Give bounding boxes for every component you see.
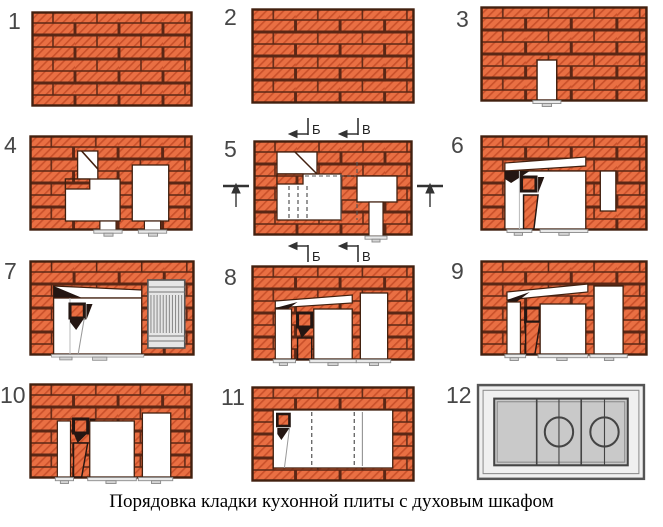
course-number: 9 <box>451 260 464 283</box>
door-hardware <box>52 355 144 361</box>
course-10-drawing <box>29 383 193 489</box>
door-hardware <box>273 360 390 366</box>
firebox-opening <box>540 304 586 354</box>
section-label-b: Б <box>312 249 321 264</box>
door-hardware <box>507 230 588 236</box>
door-hardware <box>365 236 387 242</box>
frame-section-square <box>298 313 312 327</box>
brick-wall <box>33 13 192 106</box>
firebox-opening <box>90 421 135 477</box>
top-notch-cavity <box>277 152 317 174</box>
firebox-cavity <box>505 171 586 229</box>
course-number: 3 <box>456 8 469 31</box>
door-slot <box>144 221 160 230</box>
oven-opening <box>142 413 170 477</box>
firebox-cavity <box>54 298 142 354</box>
oven-opening <box>360 293 387 359</box>
section-label-v: В <box>362 122 371 137</box>
course-8-drawing <box>251 265 415 371</box>
course-2-drawing <box>251 8 415 114</box>
masonry-course-sheet: 1 2 3 4 5 6 7 8 9 10 11 12 <box>0 0 663 527</box>
course-7-drawing <box>29 260 195 366</box>
course-4-drawing <box>29 135 193 241</box>
flue-channel <box>600 171 616 211</box>
interior-cavity <box>273 410 392 468</box>
door-slot <box>369 202 383 236</box>
ashpit-opening <box>537 60 557 100</box>
section-marker-v-top: В <box>339 118 371 138</box>
frame-section-square <box>277 414 289 426</box>
course-number: 2 <box>224 6 237 29</box>
section-arrow-right <box>417 184 443 207</box>
course-number: 6 <box>451 134 464 157</box>
frame-section-square <box>74 419 88 433</box>
left-channel <box>57 421 70 477</box>
door-slot <box>100 221 116 230</box>
course-number: 10 <box>0 384 26 407</box>
figure-caption: Порядовка кладки кухонной плиты с духовы… <box>0 491 663 513</box>
door-hardware <box>505 355 627 361</box>
section-marker-v-bottom: В <box>339 243 371 265</box>
section-marker-b-bottom: Б <box>289 243 321 265</box>
course-6-drawing <box>480 135 648 241</box>
course-number: 7 <box>4 260 17 283</box>
course-9-drawing <box>480 260 648 366</box>
left-channel <box>507 302 520 354</box>
brick-ledge <box>277 174 303 184</box>
door-hardware <box>94 230 167 236</box>
course-number: 12 <box>446 384 472 407</box>
frame-section-square <box>521 177 536 191</box>
brick-pier <box>298 338 312 359</box>
course-11-drawing <box>251 386 415 492</box>
brick-wall <box>253 10 414 103</box>
course-number: 8 <box>224 266 237 289</box>
section-marker-b-top: Б <box>289 118 321 138</box>
frame-section-square <box>70 304 84 318</box>
frame-section-square <box>526 308 541 322</box>
course-5-drawing: Б В <box>221 114 445 266</box>
course-number: 11 <box>221 386 245 409</box>
right-cavity <box>132 165 168 221</box>
course-number: 1 <box>8 10 21 33</box>
brick-wall <box>482 8 647 101</box>
left-channel <box>275 309 291 359</box>
course-12-cooktop <box>476 383 648 483</box>
oven-box <box>148 280 185 348</box>
course-3-drawing <box>480 6 648 112</box>
brick-ledge <box>65 179 89 189</box>
firebox-opening <box>314 309 352 359</box>
door-hardware <box>533 101 561 107</box>
course-1-drawing <box>31 11 193 117</box>
section-arrow-left <box>223 184 249 207</box>
section-label-v: В <box>362 249 371 264</box>
right-cavity <box>357 176 397 202</box>
door-hardware <box>55 478 172 484</box>
oven-opening <box>594 286 623 354</box>
course-number: 4 <box>4 134 17 157</box>
section-label-b: Б <box>312 122 321 137</box>
